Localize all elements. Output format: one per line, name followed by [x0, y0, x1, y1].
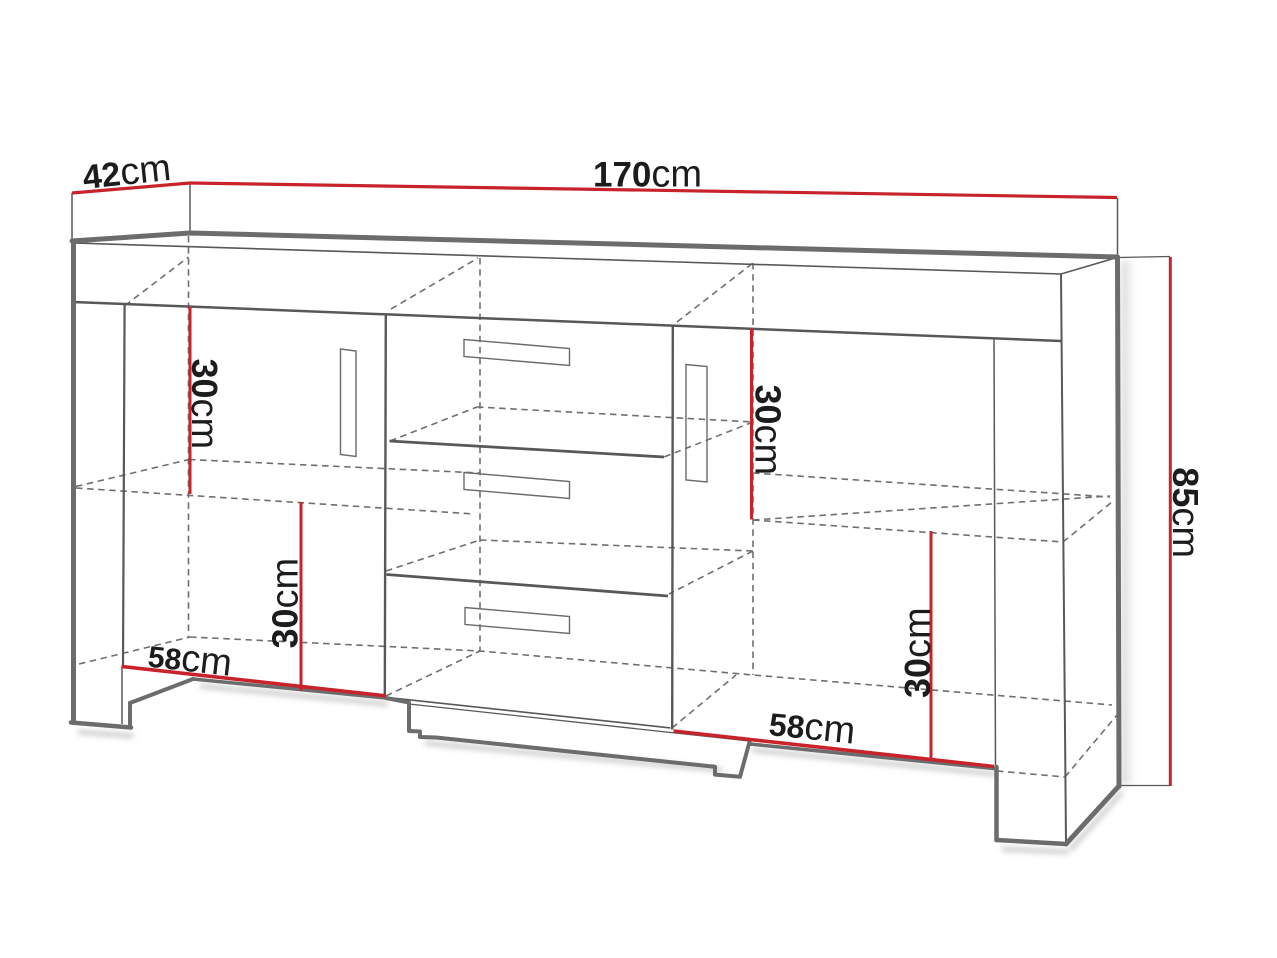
- svg-text:30cm: 30cm: [183, 359, 225, 450]
- svg-text:30cm: 30cm: [265, 558, 307, 649]
- svg-text:30cm: 30cm: [897, 607, 939, 698]
- svg-text:30cm: 30cm: [747, 385, 789, 476]
- svg-text:170cm: 170cm: [593, 154, 702, 196]
- svg-text:85cm: 85cm: [1164, 467, 1206, 558]
